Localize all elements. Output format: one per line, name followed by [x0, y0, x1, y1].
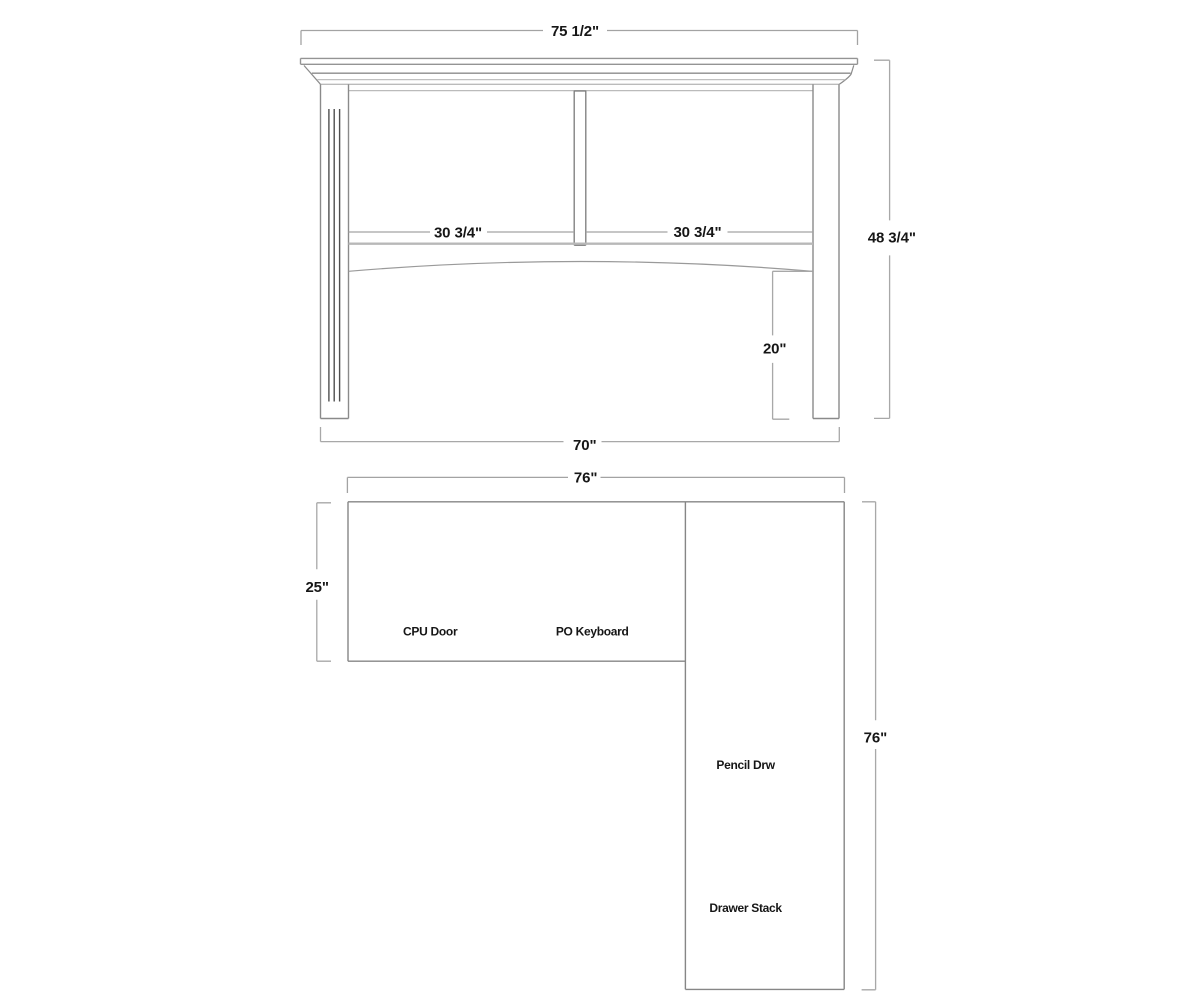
svg-text:76": 76" [864, 730, 888, 747]
svg-text:Pencil Drw: Pencil Drw [716, 758, 775, 772]
svg-text:PO Keyboard: PO Keyboard [556, 625, 629, 639]
svg-text:Drawer Stack: Drawer Stack [709, 901, 782, 915]
svg-text:20": 20" [763, 341, 787, 358]
svg-text:30 3/4": 30 3/4" [434, 224, 482, 241]
svg-text:25": 25" [305, 579, 329, 596]
svg-text:75 1/2": 75 1/2" [551, 23, 599, 40]
svg-text:76": 76" [574, 470, 598, 487]
svg-text:CPU Door: CPU Door [403, 625, 458, 639]
svg-text:48 3/4": 48 3/4" [868, 230, 916, 247]
svg-text:70": 70" [573, 437, 597, 454]
svg-text:30 3/4": 30 3/4" [673, 224, 721, 241]
